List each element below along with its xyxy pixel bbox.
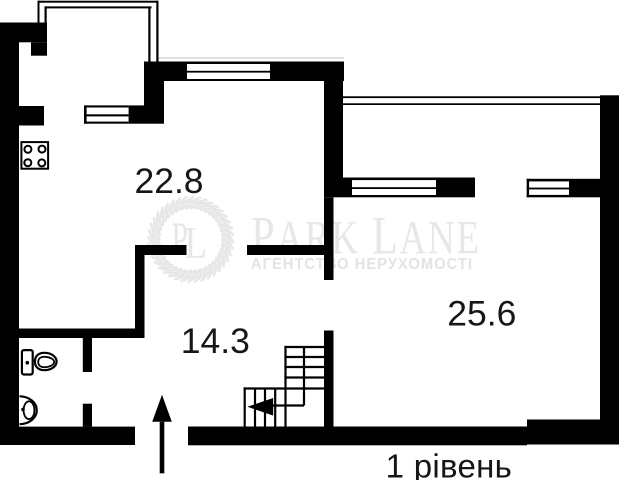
- svg-text:АГЕНТСТВО НЕРУХОМОСТІ: АГЕНТСТВО НЕРУХОМОСТІ: [251, 256, 473, 274]
- svg-text:25.6: 25.6: [447, 293, 516, 333]
- svg-text:22.8: 22.8: [134, 161, 203, 201]
- svg-text:1 рівень: 1 рівень: [386, 447, 513, 480]
- svg-text:L: L: [185, 217, 208, 267]
- svg-text:14.3: 14.3: [181, 321, 250, 361]
